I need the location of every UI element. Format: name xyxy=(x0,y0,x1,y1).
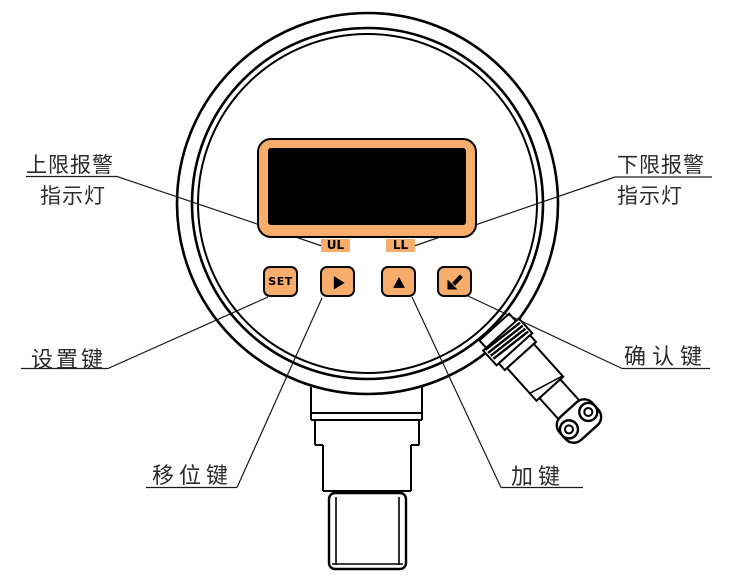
upper-alarm-callout: 上限报警 指示灯 xyxy=(26,150,120,212)
pressure-port xyxy=(311,387,422,569)
lower-alarm-callout: 下限报警 指示灯 xyxy=(617,150,715,212)
lcd-screen xyxy=(268,148,466,225)
set-key-button[interactable]: SET xyxy=(263,266,298,297)
lower-alarm-label-line2: 指示灯 xyxy=(617,181,715,212)
shift-key-button[interactable] xyxy=(320,266,355,297)
add-key-callout: 加键 xyxy=(511,459,565,491)
lower-alarm-label-line1: 下限报警 xyxy=(617,150,715,181)
set-key-callout: 设置键 xyxy=(31,342,106,374)
add-key-button[interactable] xyxy=(381,266,416,297)
right-triangle-icon xyxy=(328,272,348,292)
gauge-line-art xyxy=(0,0,752,586)
lower-limit-lamp: LL xyxy=(386,239,415,252)
upper-alarm-label-line1: 上限报警 xyxy=(26,150,120,181)
southwest-arrow-icon xyxy=(445,272,465,292)
confirm-key-callout: 确认键 xyxy=(624,339,708,371)
pressure-gauge-diagram: UL LL SET 上限报警 指示灯 下限报警 指示灯 设置键 确认键 移位键 … xyxy=(0,0,752,586)
lcd-display-frame xyxy=(257,138,477,238)
cable-connector xyxy=(476,311,607,449)
up-triangle-icon xyxy=(389,272,409,292)
upper-alarm-label-line2: 指示灯 xyxy=(26,181,120,212)
confirm-key-button[interactable] xyxy=(437,266,472,297)
set-key-label: SET xyxy=(268,275,292,288)
upper-limit-lamp: UL xyxy=(321,239,350,252)
shift-key-callout: 移位键 xyxy=(152,458,233,490)
